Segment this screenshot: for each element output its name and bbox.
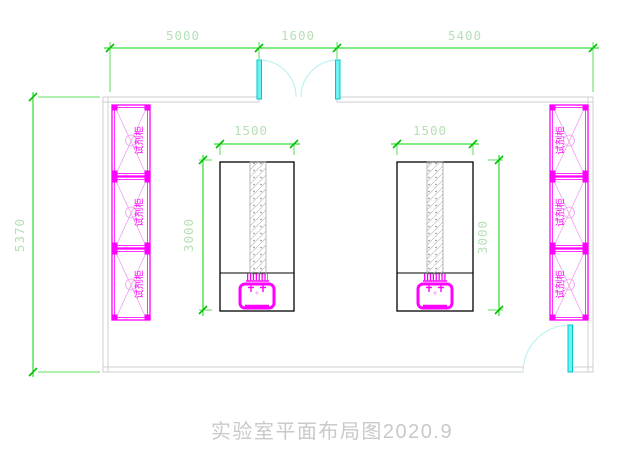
drain-grate	[246, 277, 269, 281]
reagent-cabinet: 试剂柜	[112, 105, 150, 176]
dim-label-bench-depth: 3000	[181, 218, 196, 252]
dim-label-left-height: 5370	[12, 218, 27, 252]
door-swing-arc	[523, 325, 570, 372]
reagent-cabinet: 试剂柜	[550, 177, 588, 248]
reagent-cabinet: 试剂柜	[550, 249, 588, 320]
wall-right	[588, 97, 593, 372]
reagent-cabinet-label: 试剂柜	[134, 198, 146, 227]
reagent-cabinet-label: 试剂柜	[555, 198, 567, 227]
dim-label-top-right: 5400	[448, 28, 482, 43]
sink-symbol	[240, 284, 274, 308]
bench-depth-dimension: 3000	[181, 155, 212, 316]
door-bottom-right	[523, 325, 573, 372]
bench-reagent-shelf	[427, 162, 443, 274]
dim-label-bench-width: 1500	[234, 123, 268, 138]
reagent-cabinet: 试剂柜	[550, 105, 588, 176]
cad-drawing-canvas: 5000 1600 5400 5370 试剂柜	[0, 0, 619, 469]
floor-plan-svg: 5000 1600 5400 5370 试剂柜	[0, 0, 619, 469]
reagent-cabinet-label: 试剂柜	[134, 270, 146, 299]
door-leaf-right	[336, 60, 341, 99]
lab-bench-right: 1500 3000	[391, 123, 503, 316]
bench-width-dimension: 1500	[214, 123, 300, 155]
bench-depth-dimension: 3000	[475, 155, 503, 316]
wall-bottom-left-segment	[103, 367, 523, 372]
door-leaf-left	[257, 60, 262, 99]
wall-top-right-segment	[337, 97, 593, 102]
bench-reagent-shelf	[250, 162, 266, 274]
sink-symbol	[418, 284, 452, 308]
double-door-top	[257, 60, 340, 99]
room-walls	[103, 97, 593, 372]
dim-label-bench-depth: 3000	[475, 220, 490, 254]
bench-width-dimension: 1500	[391, 123, 479, 155]
wall-left	[103, 97, 108, 372]
drawing-title: 实验室平面布局图2020.9	[211, 420, 453, 443]
top-dimension-chain: 5000 1600 5400	[104, 28, 599, 92]
door-leaf	[568, 325, 573, 372]
drain-grate	[423, 277, 447, 281]
reagent-cabinet-label: 试剂柜	[134, 126, 146, 155]
door-swing-arc-right	[301, 60, 338, 97]
dim-label-bench-width: 1500	[413, 123, 447, 138]
lab-bench-left: 1500 3000	[181, 123, 300, 316]
reagent-cabinet: 试剂柜	[112, 177, 150, 248]
reagent-cabinet-label: 试剂柜	[555, 126, 567, 155]
door-swing-arc-left	[259, 60, 296, 97]
reagent-cabinet-label: 试剂柜	[555, 270, 567, 299]
wall-bottom-right-segment	[570, 367, 593, 372]
reagent-cabinet: 试剂柜	[112, 249, 150, 320]
left-dimension: 5370	[12, 92, 100, 377]
dim-label-top-mid: 1600	[281, 28, 315, 43]
wall-top-left-segment	[103, 97, 259, 102]
dim-label-top-left: 5000	[166, 28, 200, 43]
reagent-cabinet-column-left: 试剂柜 试剂柜 试剂柜	[112, 105, 150, 320]
reagent-cabinet-column-right: 试剂柜 试剂柜 试剂柜	[550, 105, 588, 320]
